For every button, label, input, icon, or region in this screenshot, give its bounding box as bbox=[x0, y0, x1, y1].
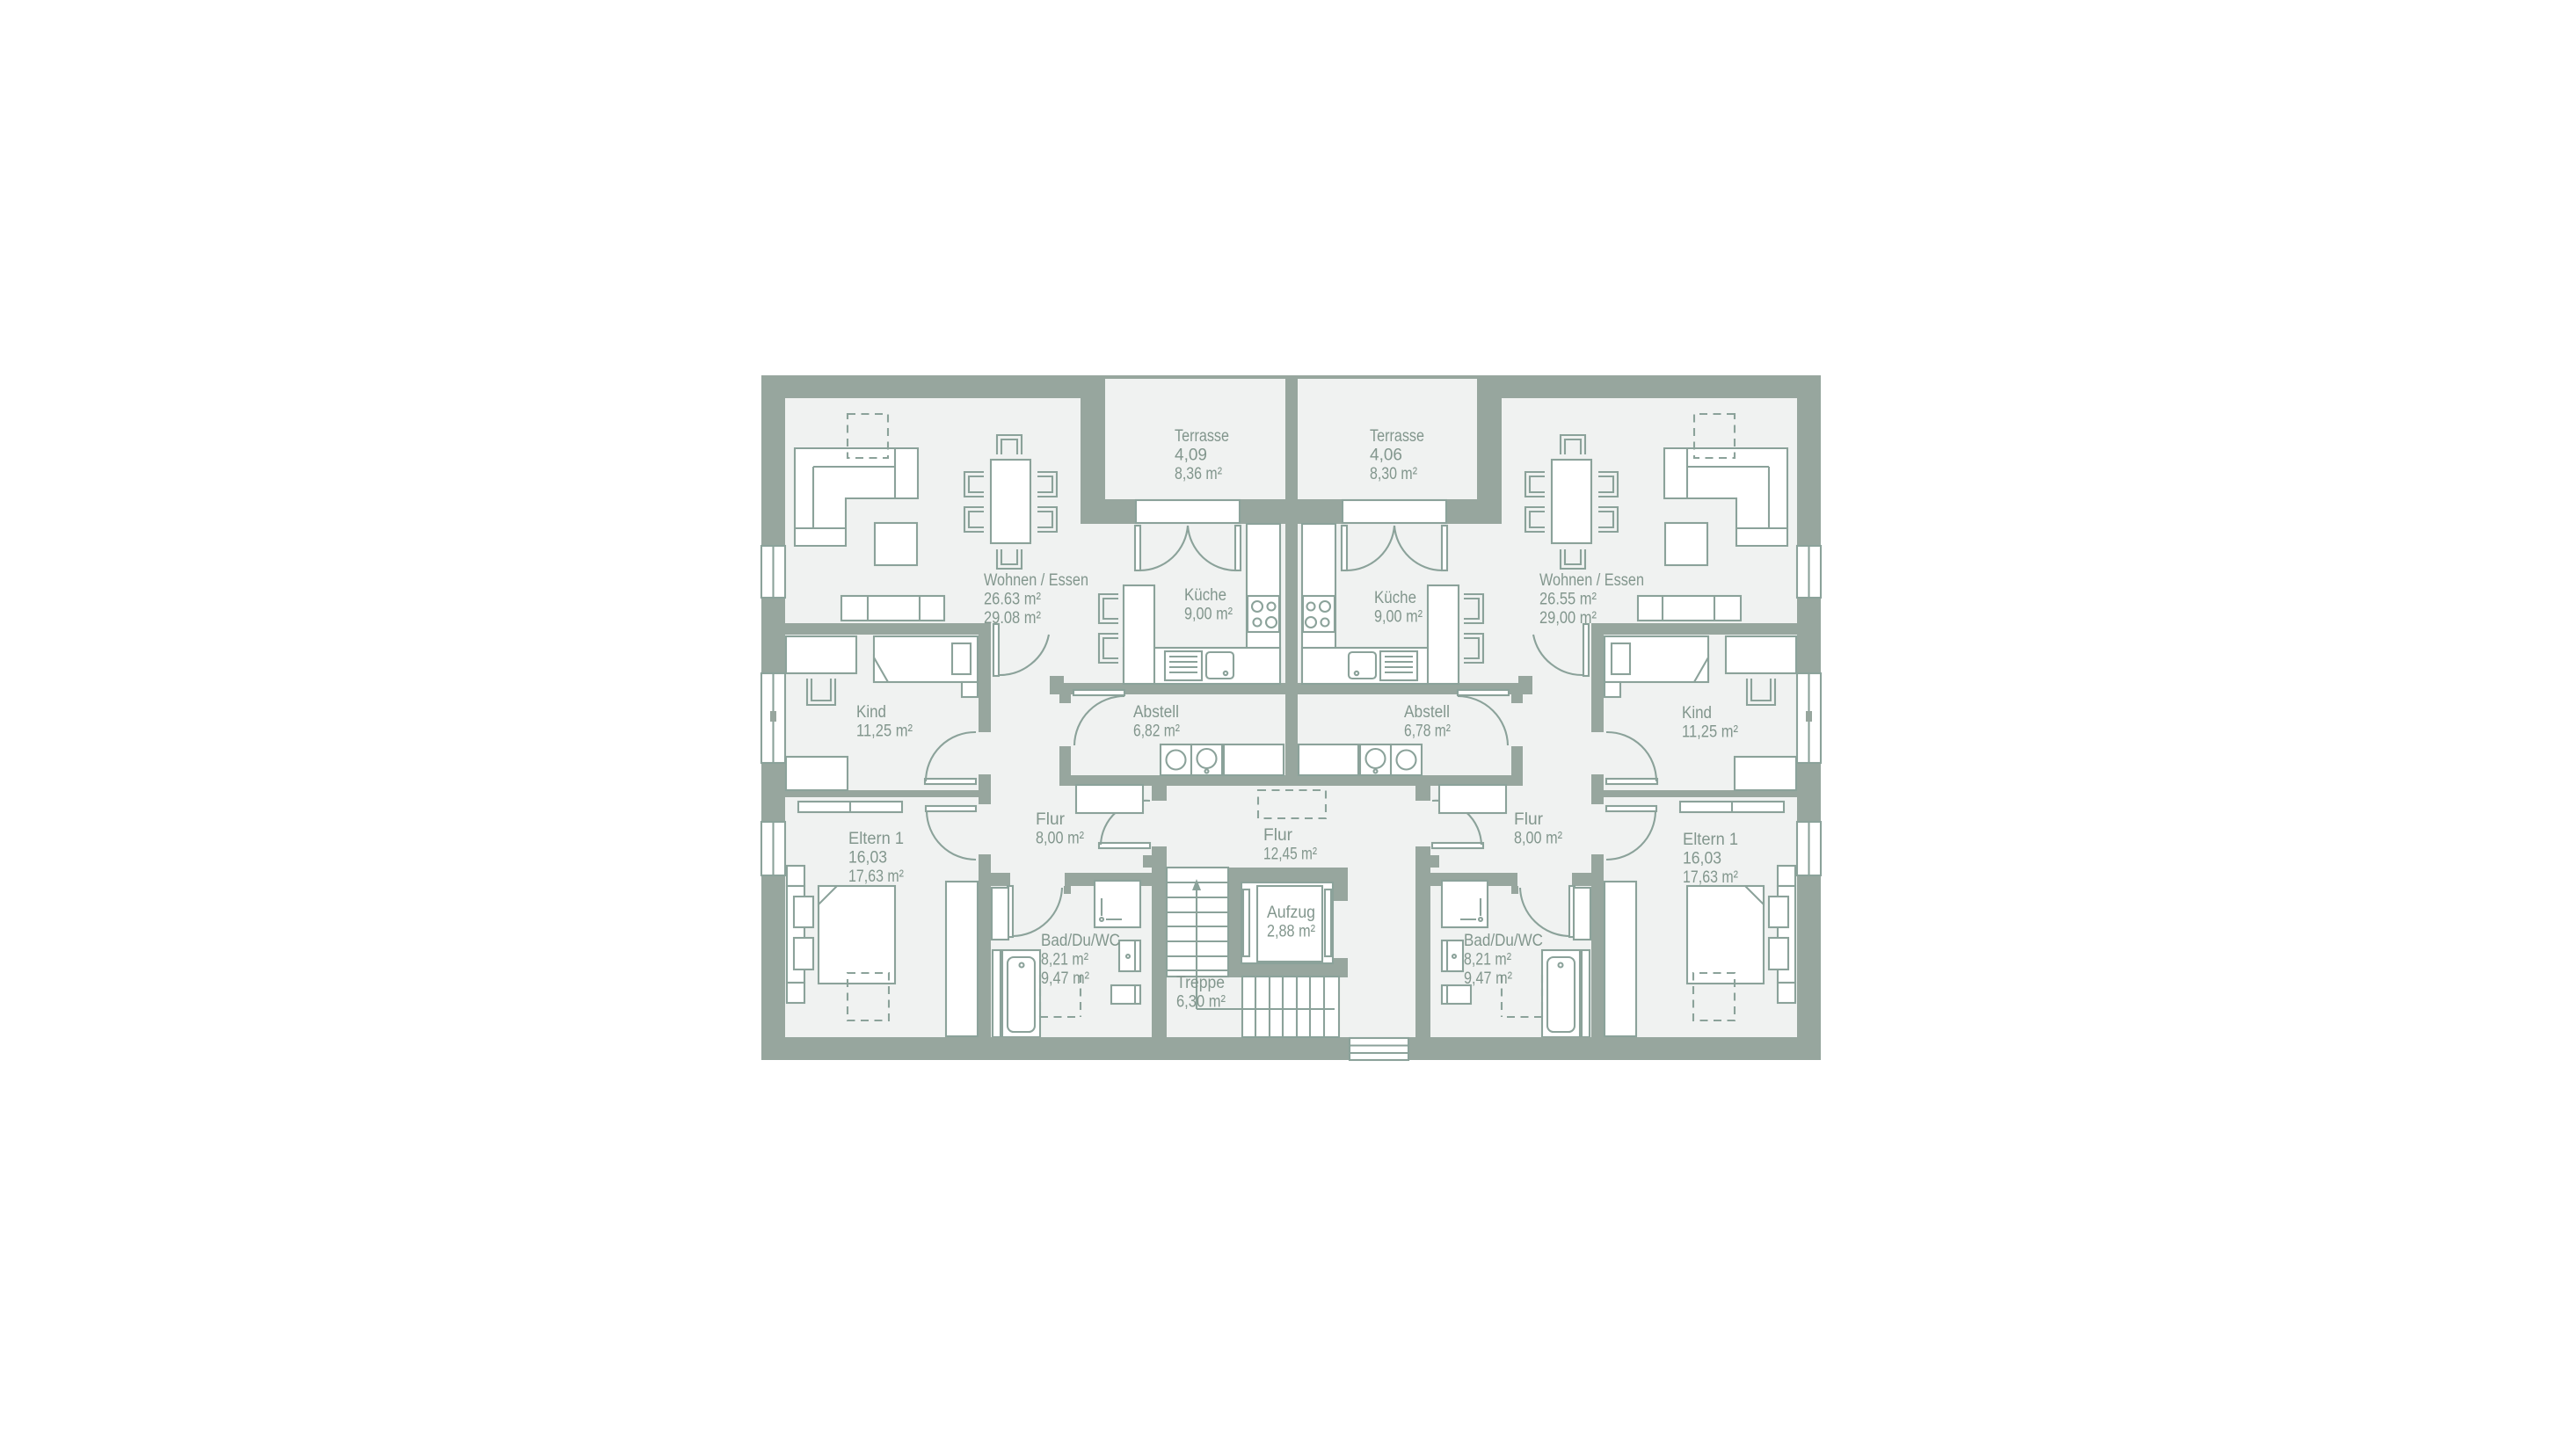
svg-text:16,03: 16,03 bbox=[1683, 850, 1721, 868]
svg-text:Terrasse: Terrasse bbox=[1370, 427, 1424, 446]
svg-text:Treppe: Treppe bbox=[1176, 974, 1225, 992]
svg-text:8,30 m²: 8,30 m² bbox=[1370, 465, 1417, 483]
svg-text:Bad/Du/WC: Bad/Du/WC bbox=[1041, 932, 1120, 950]
svg-text:Abstell: Abstell bbox=[1404, 703, 1450, 722]
svg-text:29,00 m²: 29,00 m² bbox=[1539, 609, 1597, 628]
svg-text:16,03: 16,03 bbox=[848, 849, 887, 868]
svg-text:Küche: Küche bbox=[1374, 589, 1416, 607]
svg-text:12,45 m²: 12,45 m² bbox=[1263, 846, 1317, 864]
svg-text:Eltern 1: Eltern 1 bbox=[848, 830, 904, 848]
svg-text:9,47 m²: 9,47 m² bbox=[1041, 969, 1089, 988]
svg-text:11,25 m²: 11,25 m² bbox=[856, 722, 913, 741]
svg-text:Kind: Kind bbox=[1682, 704, 1712, 722]
svg-text:Kind: Kind bbox=[856, 703, 886, 722]
svg-text:8,00 m²: 8,00 m² bbox=[1514, 830, 1562, 848]
svg-text:8,21 m²: 8,21 m² bbox=[1464, 951, 1511, 969]
svg-text:Flur: Flur bbox=[1263, 826, 1293, 845]
svg-text:Wohnen / Essen: Wohnen / Essen bbox=[1539, 571, 1644, 590]
svg-text:8,36 m²: 8,36 m² bbox=[1175, 465, 1222, 483]
svg-text:9,00 m²: 9,00 m² bbox=[1184, 606, 1233, 624]
svg-text:Eltern 1: Eltern 1 bbox=[1683, 831, 1738, 849]
svg-text:2,88 m²: 2,88 m² bbox=[1267, 923, 1315, 941]
svg-text:29.08 m²: 29.08 m² bbox=[984, 609, 1041, 628]
svg-text:9,47 m²: 9,47 m² bbox=[1464, 969, 1512, 988]
svg-text:6,82 m²: 6,82 m² bbox=[1133, 722, 1180, 741]
svg-text:17,63 m²: 17,63 m² bbox=[848, 868, 904, 886]
svg-text:Küche: Küche bbox=[1184, 586, 1226, 605]
svg-text:Terrasse: Terrasse bbox=[1175, 427, 1229, 446]
svg-text:Bad/Du/WC: Bad/Du/WC bbox=[1464, 932, 1543, 950]
svg-text:26.55 m²: 26.55 m² bbox=[1539, 591, 1597, 609]
svg-text:Aufzug: Aufzug bbox=[1267, 904, 1315, 922]
svg-text:9,00 m²: 9,00 m² bbox=[1374, 608, 1423, 627]
svg-text:6,30 m²: 6,30 m² bbox=[1176, 993, 1226, 1012]
svg-text:6,78 m²: 6,78 m² bbox=[1404, 722, 1451, 741]
svg-text:Flur: Flur bbox=[1036, 810, 1066, 829]
svg-text:4,09: 4,09 bbox=[1175, 447, 1207, 465]
svg-text:Abstell: Abstell bbox=[1133, 703, 1179, 722]
svg-text:17,63 m²: 17,63 m² bbox=[1683, 868, 1738, 887]
svg-text:11,25 m²: 11,25 m² bbox=[1682, 723, 1738, 742]
svg-text:4,06: 4,06 bbox=[1370, 447, 1402, 465]
svg-text:26.63 m²: 26.63 m² bbox=[984, 591, 1041, 609]
svg-text:Wohnen / Essen: Wohnen / Essen bbox=[984, 571, 1088, 590]
svg-text:Flur: Flur bbox=[1514, 810, 1544, 829]
svg-text:8,00 m²: 8,00 m² bbox=[1036, 830, 1084, 848]
svg-text:8,21 m²: 8,21 m² bbox=[1041, 951, 1088, 969]
